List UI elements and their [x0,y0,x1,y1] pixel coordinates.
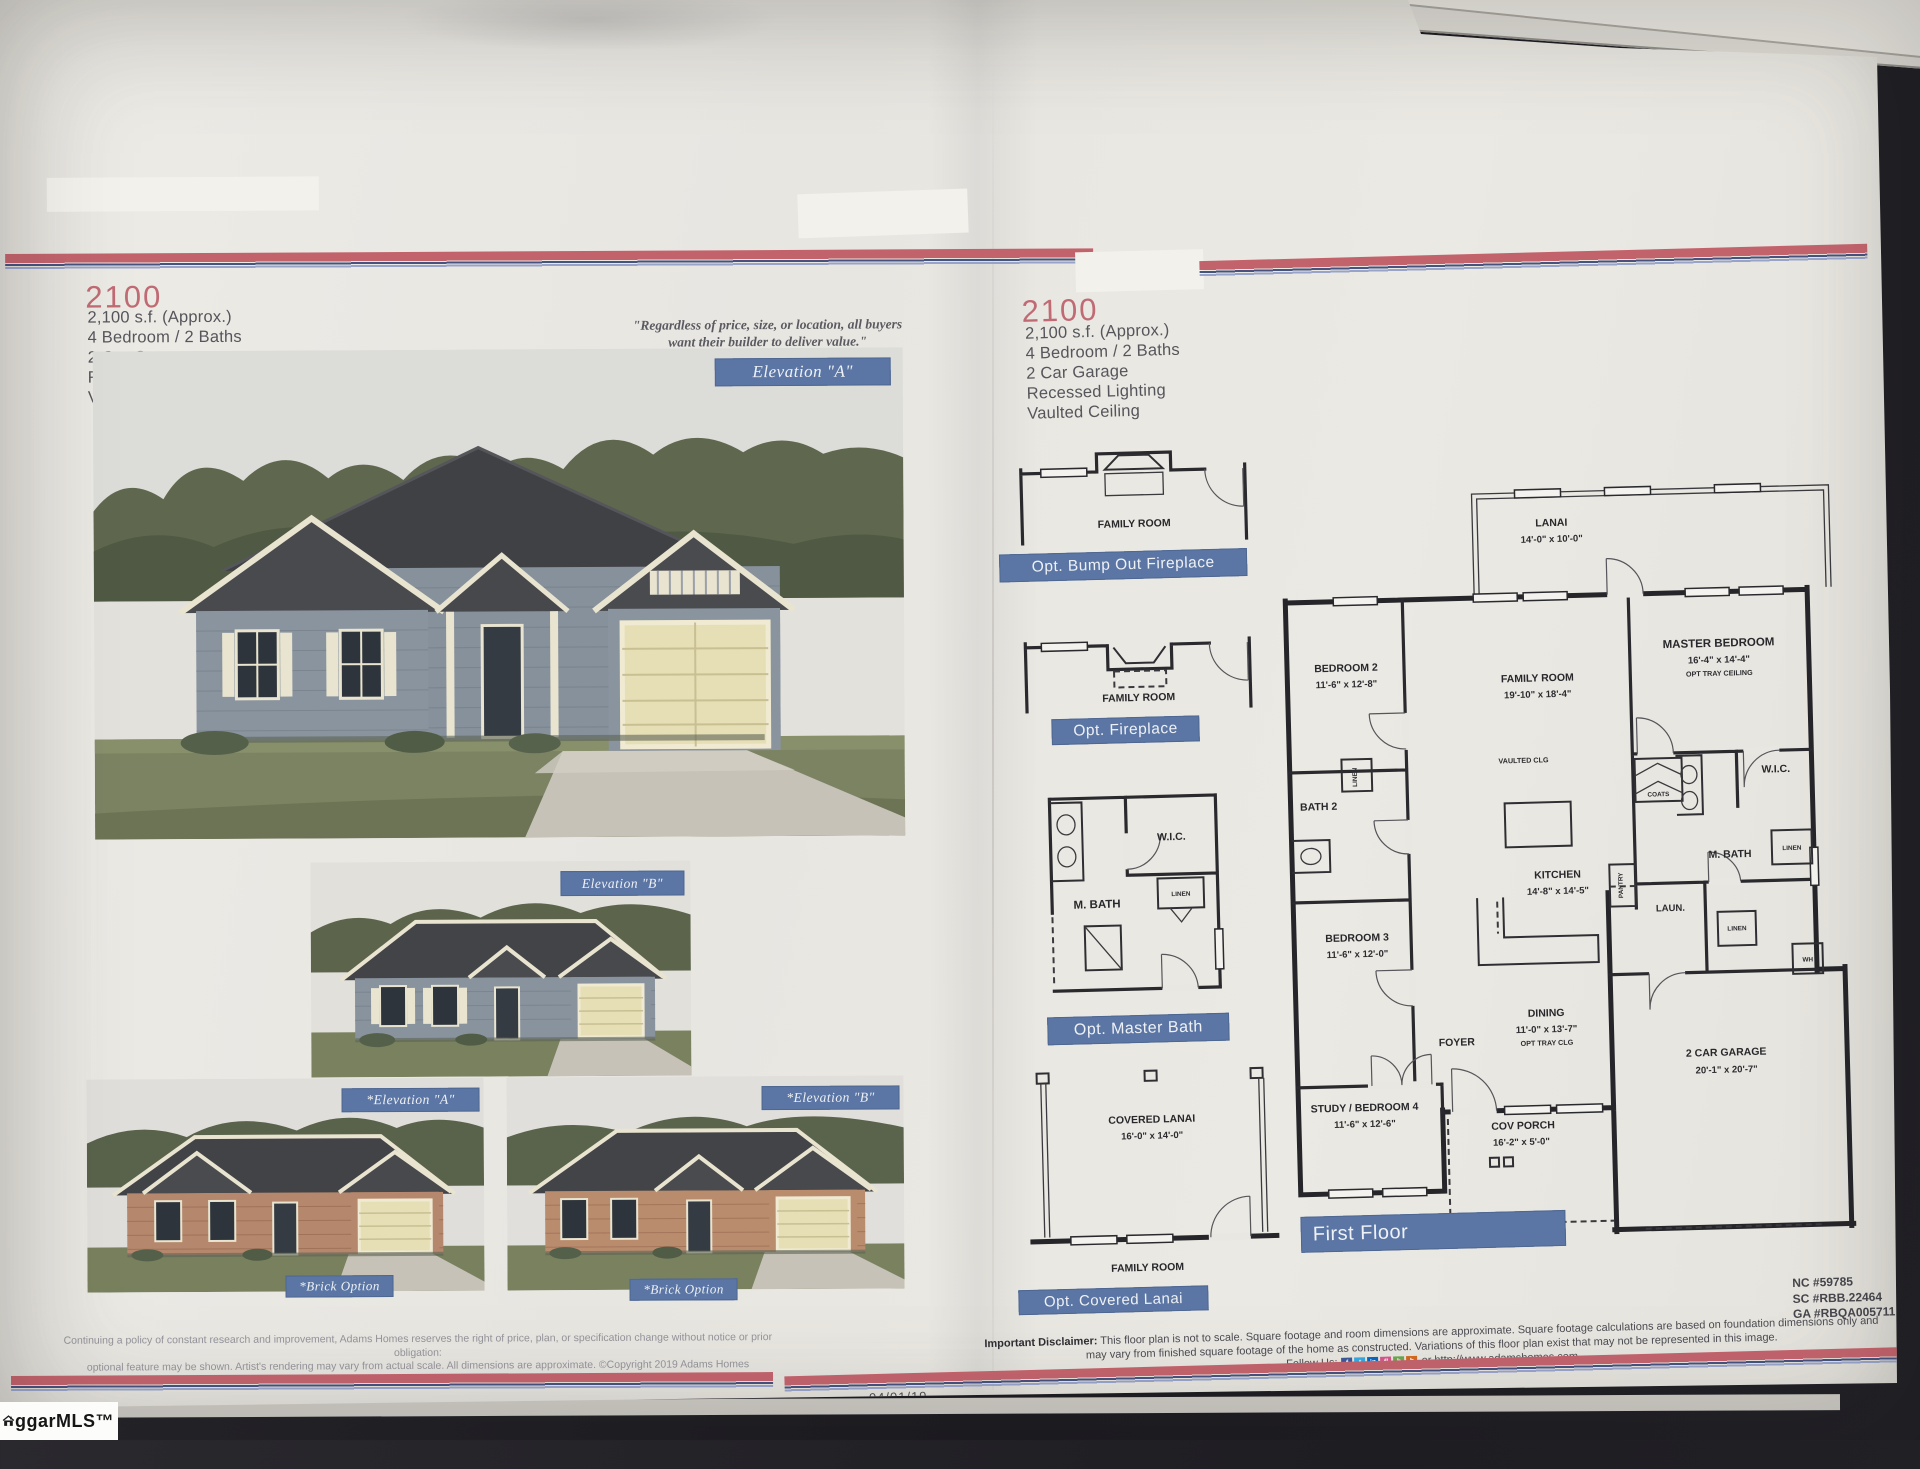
room-dining-note: OPT TRAY CLG [1520,1038,1573,1048]
room-bedroom2-dim: 11'-6" x 12'-8" [1316,679,1378,692]
room-mbath: M. BATH [1073,898,1120,911]
spec-list: 2,100 s.f. (Approx.) 4 Bedroom / 2 Baths… [1025,320,1182,424]
spec-lighting: Recessed Lighting [1026,380,1181,404]
whiteout-patch [1075,249,1204,292]
room-family: FAMILY ROOM [1102,691,1175,705]
room-garage: 2 CAR GARAGE [1686,1046,1767,1060]
room-linen1: LINEN [1352,767,1360,787]
master-bath-diagram: W.I.C. M. BATH LINEN [1037,781,1233,1014]
room-master-note: OPT TRAY CEILING [1686,668,1753,679]
room-linen3: LINEN [1727,925,1747,933]
room-kitchen: KITCHEN [1534,868,1581,881]
covered-lanai-diagram: COVERED LANAI 16'-0" x 14'-0" FAMILY ROO… [1022,1061,1284,1286]
room-cov-porch-dim: 16'-2" x 5'-0" [1493,1136,1550,1148]
room-family: FAMILY ROOM [1098,517,1171,531]
room-garage-dim: 20'-1" x 20'-7" [1695,1064,1757,1077]
brochure-paper: 2100 2,100 s.f. (Approx.) 4 Bedroom / 2 … [0,0,1920,1440]
master-bath-label: Opt. Master Bath [1047,1013,1230,1046]
room-bedroom3: BEDROOM 3 [1325,931,1389,945]
room-covered-lanai: COVERED LANAI [1108,1113,1195,1127]
room-study: STUDY / BEDROOM 4 [1311,1101,1419,1116]
room-kitchen-dim: 14'-8" x 14'-5" [1527,885,1589,898]
room-cov-porch: COV PORCH [1491,1119,1555,1133]
room-linen2: LINEN [1782,845,1802,853]
bumpout-fireplace-diagram: FAMILY ROOM [1006,446,1261,553]
room-wic: W.I.C. [1761,763,1790,776]
brand-stripe-top-right [1199,244,1867,277]
bumpout-fireplace-label: Opt. Bump Out Fireplace [999,548,1248,582]
fireplace-diagram: FAMILY ROOM [1011,626,1265,721]
disclaimer-heading: Important Disclaimer: [984,1335,1097,1350]
fireplace-label: Opt. Fireplace [1051,715,1200,745]
room-mbath: M. BATH [1708,848,1751,861]
spec-beds: 4 Bedroom / 2 Baths [1025,340,1180,364]
room-dining-dim: 11'-0" x 13'-7" [1516,1024,1578,1037]
spec-ceiling: Vaulted Ceiling [1027,400,1182,424]
room-study-dim: 11'-6" x 12'-6" [1334,1118,1396,1131]
room-linen: LINEN [1171,891,1191,899]
room-bedroom2: BEDROOM 2 [1314,662,1378,676]
mls-watermark-text: ggarMLS™ [15,1411,114,1432]
room-lanai-dim: 14'-0" x 10'-0" [1521,533,1583,546]
room-coats: COATS [1647,791,1670,799]
mls-watermark: ggarMLS™ [0,1402,118,1440]
room-laun: LAUN. [1656,903,1685,915]
room-lanai: LANAI [1535,517,1567,530]
covered-lanai-label: Opt. Covered Lanai [1018,1285,1209,1315]
room-bath2: BATH 2 [1300,801,1338,814]
room-bedroom3-dim: 11'-6" x 12'-0" [1327,948,1389,961]
room-vaulted-clg: VAULTED CLG [1498,755,1549,765]
covered-lanai-dim: 16'-0" x 14'-0" [1121,1130,1183,1143]
room-dining: DINING [1528,1007,1565,1020]
room-family: FAMILY ROOM [1111,1261,1184,1275]
room-pantry: PANTRY [1617,872,1625,898]
room-family-dim: 19'-10" x 18'-4" [1504,689,1572,702]
room-master-dim: 16'-4" x 14'-4" [1688,654,1750,667]
room-master: MASTER BEDROOM [1662,636,1774,651]
floor-plan: LANAI 14'-0" x 10'-0" BEDROOM 2 11'-6" x… [1274,458,1874,1253]
house-icon [2,1409,15,1433]
right-page: 2100 2,100 s.f. (Approx.) 4 Bedroom / 2 … [0,0,1920,1469]
first-floor-label: First Floor [1300,1210,1566,1253]
whiteout-patch [797,188,968,238]
room-foyer: FOYER [1439,1036,1476,1049]
room-family: FAMILY ROOM [1501,672,1574,686]
room-wh: WH [1802,956,1813,963]
room-wic: W.I.C. [1157,831,1186,844]
